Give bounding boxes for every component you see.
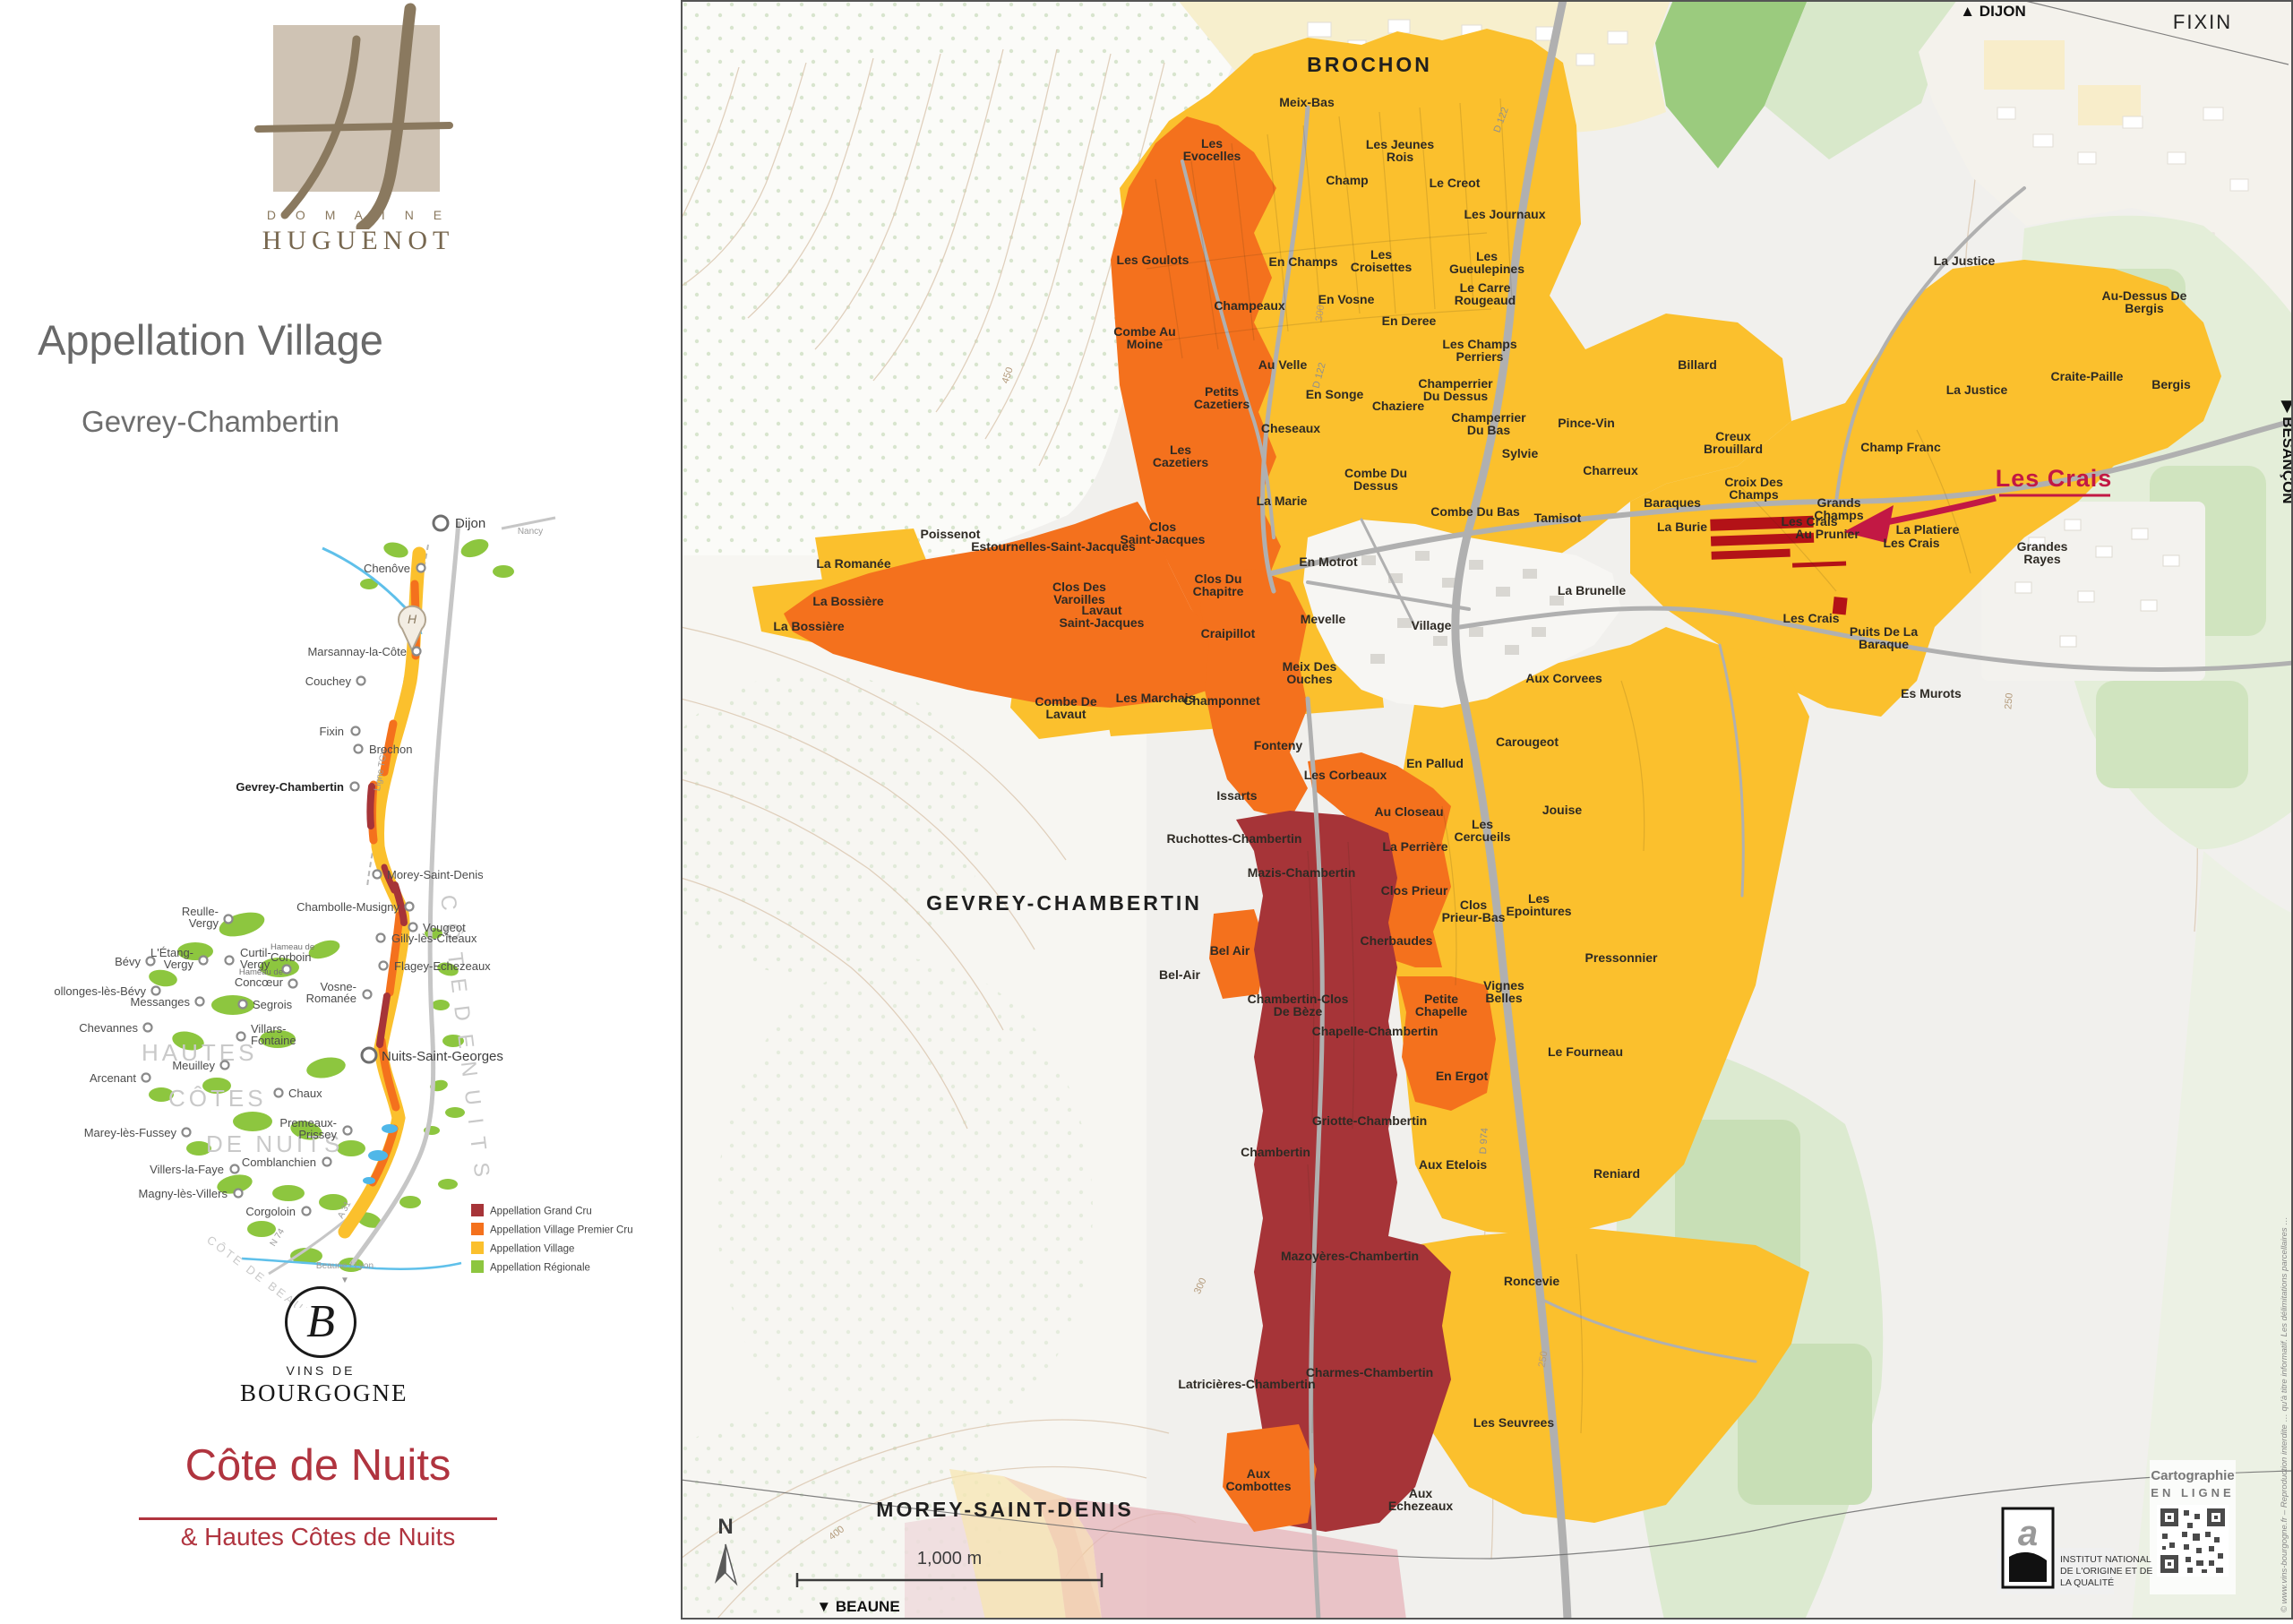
town-dot	[344, 1127, 352, 1135]
parcel-label-village: La Bossière	[812, 594, 884, 608]
town-label: Meuilley	[172, 1059, 215, 1072]
town-dot	[231, 1165, 239, 1173]
town-label: Arcenant	[90, 1071, 136, 1085]
inao-line2: DE L'ORIGINE ET DE	[2060, 1566, 2152, 1577]
town-dot	[225, 915, 233, 924]
parcel-label-village: Bel-Air	[1159, 967, 1200, 982]
parcel-label-village: VignesBelles	[1483, 978, 1524, 1005]
map-town-label: GEVREY-CHAMBERTIN	[926, 891, 1202, 915]
detail-map-panel: 1,000 m N Cartographie EN LIGNE	[681, 0, 2293, 1620]
town-dot	[289, 980, 297, 988]
town-dot	[152, 987, 160, 995]
town-dot	[357, 677, 365, 685]
parcel-label-village: GrandesRayes	[2017, 539, 2068, 566]
parcel-label-village: La Bossière	[773, 619, 845, 633]
contour-label: 300	[1314, 305, 1327, 322]
legend-label: Appellation Village	[490, 1244, 574, 1255]
parcel-label-village: Croix DesChamps	[1724, 475, 1783, 502]
town-label: Concœur	[235, 975, 284, 989]
domaine-label: D O M A I N E	[134, 208, 582, 222]
parcel-label-village: Les Journaux	[1464, 207, 1545, 221]
parcel-label-village: Champ	[1326, 173, 1368, 187]
town-dot	[377, 934, 385, 942]
town-dot	[417, 564, 425, 572]
town-dot	[200, 957, 208, 965]
parcel-label-grand: Mazoyères-Chambertin	[1281, 1249, 1419, 1263]
parcel-label-village: En Vosne	[1318, 292, 1375, 306]
town-dot	[351, 783, 359, 791]
town-label: Corboin	[271, 950, 312, 964]
parcel-label-village: Le Fourneau	[1548, 1044, 1623, 1059]
town-dot	[362, 1048, 376, 1062]
parcel-label-premier: Clos Prieur	[1381, 883, 1448, 898]
legend-swatch	[471, 1204, 484, 1216]
parcel-label-grand: Mazis-Chambertin	[1248, 865, 1356, 880]
town-dot	[235, 1190, 243, 1198]
town-label: Nuits-Saint-Georges	[382, 1049, 503, 1064]
parcel-label-village: Roncevie	[1504, 1274, 1559, 1288]
town-label: Bévy	[115, 955, 141, 968]
town-label: Brochon	[369, 743, 412, 756]
parcel-label-village: Sylvie	[1502, 446, 1539, 460]
town-label: Fontaine	[251, 1034, 296, 1047]
parcel-label-village: Village	[1412, 618, 1452, 632]
region-label: CÔTES	[168, 1085, 267, 1112]
parcel-label-premier: En Ergot	[1436, 1069, 1489, 1083]
town-label: Gilly-lès-Cîteaux	[391, 932, 477, 945]
parcel-label-premier: Clos DuChapitre	[1193, 571, 1244, 598]
town-dot	[409, 924, 417, 932]
copyright-text: © www.vins-bourgogne.fr – Reproduction i…	[2280, 1216, 2289, 1612]
north-label: N	[717, 1515, 733, 1539]
parcel-label-village: Jouise	[1542, 803, 1583, 817]
town-dot	[323, 1158, 331, 1166]
town-label: Vergy	[189, 916, 219, 930]
parcel-label-grand: Charmes-Chambertin	[1306, 1365, 1433, 1379]
parcel-label-grand: Ruchottes-Chambertin	[1167, 831, 1302, 846]
legend-label: Appellation Grand Cru	[490, 1207, 592, 1217]
parcel-label-village: La Platiere	[1896, 522, 1960, 537]
parcel-label-village: En Deree	[1382, 314, 1437, 328]
les-crais-annotation-label: Les Crais	[1996, 465, 2113, 492]
town-dot	[196, 998, 204, 1006]
parcel-label-village: Meix-Bas	[1279, 95, 1335, 109]
town-dot	[226, 957, 234, 965]
town-dot	[374, 871, 382, 879]
legend-swatch	[471, 1260, 484, 1273]
road-label: D 974	[1478, 1128, 1490, 1155]
parcel-label-village: Combe Du Bas	[1430, 504, 1520, 519]
page-title: Appellation Village	[0, 315, 421, 365]
scale-label: 1,000 m	[917, 1549, 982, 1568]
parcel-label-grand: Griotte-Chambertin	[1312, 1113, 1427, 1128]
page-subtitle: Gevrey-Chambertin	[0, 405, 421, 439]
parcel-label-premier: Au Closeau	[1374, 804, 1443, 819]
parcel-label-village: Reniard	[1593, 1166, 1640, 1181]
legend-swatch	[471, 1242, 484, 1254]
town-label: Morey-Saint-Denis	[387, 868, 484, 881]
town-label: Gevrey-Chambertin	[236, 780, 344, 794]
parcel-label-village: Aux Corvees	[1525, 671, 1602, 685]
town-label: Dijon	[455, 516, 485, 531]
parcel-label-village: Le Creot	[1430, 176, 1481, 190]
parcel-label-premier: Bel Air	[1210, 943, 1250, 958]
parcel-label-premier: Estournelles-Saint-Jacques	[971, 539, 1136, 554]
town-label: Chenôve	[364, 562, 410, 575]
parcel-label-grand: Latricières-Chambertin	[1178, 1377, 1315, 1391]
parcel-label-village: La Marie	[1257, 494, 1308, 508]
town-dot	[142, 1074, 150, 1082]
parcel-label-premier: Champeaux	[1214, 298, 1285, 313]
town-dot	[355, 745, 363, 753]
town-label: Marey-lès-Fussey	[84, 1126, 177, 1139]
town-label: Corgoloin	[245, 1205, 296, 1218]
town-label: Chaux	[288, 1087, 322, 1100]
legend-label: Appellation Village Premier Cru	[490, 1225, 633, 1236]
parcel-label-village: La Romanée	[816, 556, 890, 571]
parcel-label-village: Pressonnier	[1585, 950, 1658, 965]
parcel-label-village: GrandsChamps	[1814, 495, 1863, 522]
parcel-label-village: La Burie	[1657, 520, 1707, 534]
parcel-label-village: Billard	[1678, 357, 1717, 372]
contour-label: 250	[2003, 692, 2015, 709]
cartographie-label: Cartographie	[2151, 1468, 2234, 1483]
parcel-label-village: Mevelle	[1301, 612, 1346, 626]
svg-text:H: H	[408, 612, 417, 626]
parcel-label-premier: Champonnet	[1183, 693, 1260, 708]
region-title: Côte de Nuits	[85, 1440, 551, 1491]
parcel-label-village: Les Seuvrees	[1473, 1415, 1554, 1430]
town-dot	[434, 516, 448, 530]
town-label: Chevannes	[79, 1021, 138, 1035]
map-edge-label: ▼ BEAUNE	[816, 1598, 899, 1615]
bourgogne-logo: B VINS DE BOURGOGNE	[240, 1286, 401, 1407]
town-dot	[303, 1207, 311, 1216]
qr-code	[2157, 1505, 2229, 1577]
parcel-label-premier: Les Corbeaux	[1304, 768, 1387, 782]
town-label: Villers-la-Faye	[150, 1163, 224, 1176]
parcel-label-village: Champ Franc	[1860, 440, 1941, 454]
town-dot	[380, 962, 388, 970]
town-label: Fixin	[320, 725, 344, 738]
en-ligne-label: EN LIGNE	[2151, 1486, 2234, 1499]
parcel-label-village: En Songe	[1306, 387, 1364, 401]
parcel-label-village: En Pallud	[1406, 756, 1464, 770]
parcel-label-village: Baraques	[1644, 495, 1701, 510]
town-dot	[364, 991, 372, 999]
inao-line3: LA QUALITÉ	[2060, 1577, 2114, 1588]
town-label: Segrois	[253, 998, 293, 1011]
map-town-label: MOREY-SAINT-DENIS	[876, 1498, 1133, 1521]
parcel-label-village: Aux Etelois	[1419, 1157, 1487, 1172]
parcel-label-village: Bergis	[2151, 377, 2191, 391]
legend-swatch	[471, 1223, 484, 1235]
parcel-label-premier: Issarts	[1216, 788, 1257, 803]
parcel-label-village: ChamperrierDu Dessus	[1418, 376, 1493, 403]
parcel-label-village: Au Prunier	[1795, 527, 1859, 541]
map-town-label: BROCHON	[1307, 53, 1432, 76]
info-panel: D O M A I N E HUGUENOT Appellation Villa…	[0, 0, 681, 1620]
bourgogne-monogram-icon: B	[285, 1286, 356, 1358]
region-subtitle: & Hautes Côtes de Nuits	[85, 1523, 551, 1551]
town-label: Magny-lès-Villers	[139, 1187, 228, 1200]
parcel-label-village: Cheseaux	[1261, 421, 1320, 435]
town-dot	[239, 1001, 247, 1009]
map-edge-label: FIXIN	[2173, 11, 2232, 33]
town-dot	[275, 1089, 283, 1097]
parcel-label-premier: Poissenot	[921, 527, 981, 541]
parcel-label-village: Combe DuDessus	[1344, 466, 1407, 493]
parcel-label-village: Meix DesOuches	[1283, 659, 1337, 686]
title-underline	[139, 1517, 497, 1520]
domaine-name: HUGUENOT	[134, 226, 582, 256]
parcel-label-village: Au Velle	[1258, 357, 1308, 372]
parcel-label-premier: Fonteny	[1254, 738, 1303, 752]
page: D O M A I N E HUGUENOT Appellation Villa…	[0, 0, 2293, 1620]
inao-line1: INSTITUT NATIONAL	[2060, 1554, 2151, 1565]
parcel-label-village: En Motrot	[1299, 554, 1358, 569]
legend: Appellation Grand CruAppellation Village…	[471, 1204, 633, 1274]
town-label: Prissey	[298, 1128, 337, 1141]
town-dot	[352, 727, 360, 735]
overview-map: H N 74A 31Ligne TGV HAUTESCÔTESDE NUITSC…	[54, 502, 663, 1308]
svg-text:a: a	[2018, 1514, 2038, 1553]
town-label: Marsannay-la-Côte	[307, 645, 407, 658]
vins-de-label: VINS DE	[240, 1363, 401, 1378]
town-label: Vergy	[164, 958, 194, 971]
parcel-label-village: Charreux	[1583, 463, 1638, 477]
town-dot	[237, 1033, 245, 1041]
legend-label: Appellation Régionale	[490, 1263, 590, 1274]
parcel-label-village: Chaziere	[1372, 399, 1425, 413]
parcel-label-premier: Les Goulots	[1117, 253, 1189, 267]
parcel-label-premier: Cherbaudes	[1361, 933, 1433, 948]
parcel-label-premier: Craipillot	[1201, 626, 1256, 640]
domaine-logo	[273, 25, 440, 192]
town-label: Comblanchien	[242, 1156, 316, 1169]
parcel-label-village: La Justice	[1946, 382, 2008, 397]
parcel-label-village: Craite-Paille	[2051, 369, 2124, 383]
parcel-label-village: Le CarreRougeaud	[1455, 280, 1516, 307]
inao-logo: a	[2003, 1508, 2053, 1587]
parcel-label-village: Puits De LaBaraque	[1850, 624, 1918, 651]
parcel-label-village: Pince-Vin	[1558, 416, 1615, 430]
parcel-label-village: En Champs	[1268, 254, 1337, 269]
parcel-label-grand: Chapelle-Chambertin	[1312, 1024, 1438, 1038]
map-note-label: Beaune / Lyon	[316, 1261, 374, 1271]
parcel-label-village: Carougeot	[1496, 735, 1559, 749]
town-label: Messanges	[131, 995, 191, 1009]
parcel-label-village: Les Crais	[1883, 536, 1939, 550]
map-edge-label: ▲ DIJON	[1960, 3, 2026, 20]
town-label: Couchey	[305, 675, 352, 688]
parcel-label-grand: Chambertin	[1241, 1145, 1310, 1159]
town-dot	[406, 903, 414, 911]
domaine-location-pin: H	[399, 606, 425, 650]
map-note-label: Nancy	[518, 527, 543, 537]
parcel-label-village: Tamisot	[1534, 511, 1582, 525]
parcel-label-village: La Justice	[1934, 253, 1996, 268]
detail-map: 1,000 m N Cartographie EN LIGNE	[681, 0, 2293, 1620]
parcel-label-village: Les Crais	[1782, 611, 1839, 625]
town-dot	[147, 958, 155, 966]
town-label: Chambolle-Musigny	[296, 900, 399, 914]
town-dot	[221, 1061, 229, 1070]
parcel-label-premier: La Perrière	[1382, 839, 1447, 854]
parcel-label-village: La Brunelle	[1558, 583, 1626, 597]
town-label: Romanée	[306, 992, 356, 1005]
town-dot	[283, 966, 291, 974]
town-dot	[144, 1024, 152, 1032]
map-edge-label: ▶ BESANÇON	[2280, 400, 2293, 503]
parcel-label-village: Es Murots	[1901, 686, 1962, 700]
town-dot	[183, 1129, 191, 1137]
map-note-label: ▼	[340, 1276, 349, 1285]
bourgogne-label: BOURGOGNE	[240, 1379, 401, 1407]
town-dot	[413, 648, 421, 656]
town-label: Flagey-Echezeaux	[394, 959, 491, 973]
